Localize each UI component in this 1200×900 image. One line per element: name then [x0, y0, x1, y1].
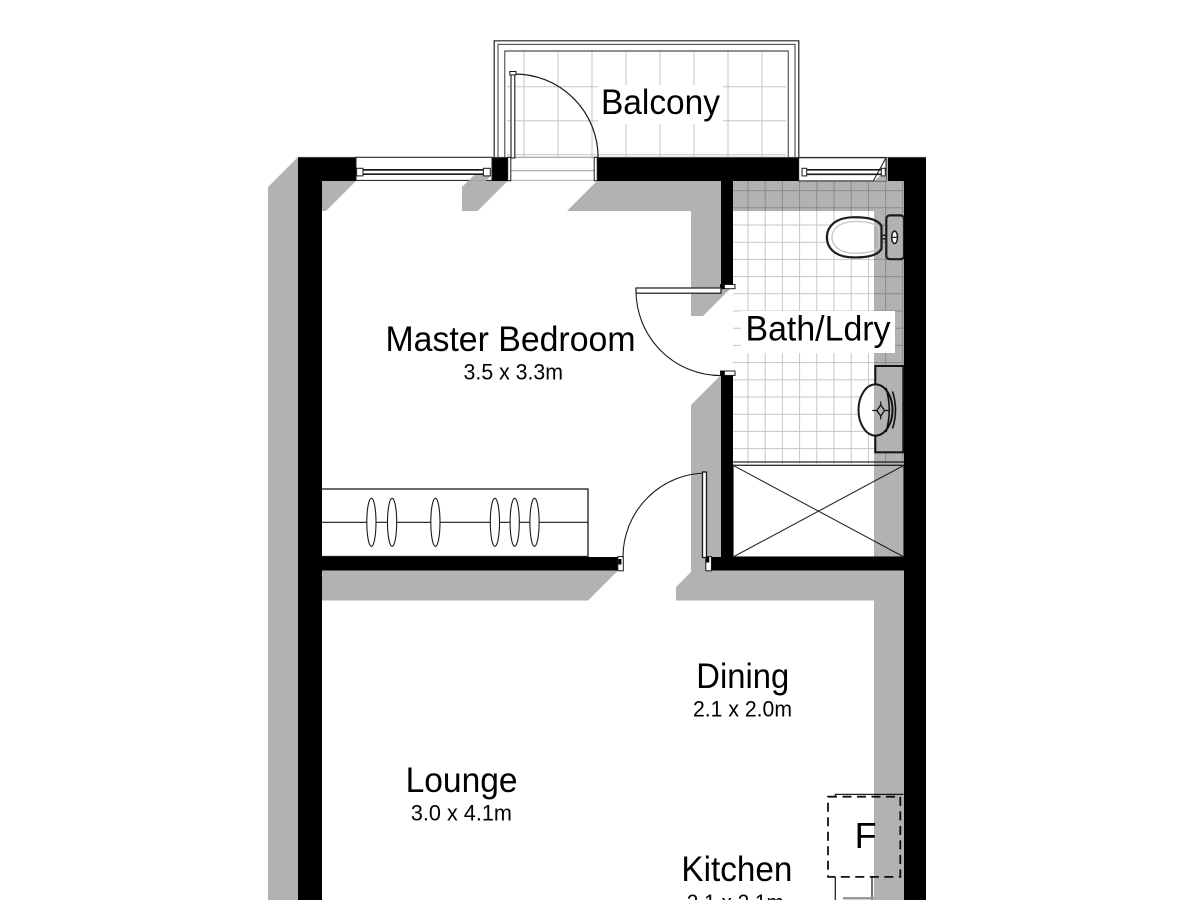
svg-text:Lounge: Lounge: [406, 761, 518, 800]
svg-text:Kitchen: Kitchen: [681, 850, 792, 889]
svg-text:3.5 x 3.3m: 3.5 x 3.3m: [464, 360, 564, 385]
svg-text:2.1 x 2.0m: 2.1 x 2.0m: [693, 697, 792, 722]
svg-text:Balcony: Balcony: [601, 83, 720, 122]
svg-text:Dining: Dining: [696, 657, 789, 696]
svg-text:Bath/Ldry: Bath/Ldry: [746, 310, 891, 349]
svg-text:Master Bedroom: Master Bedroom: [386, 320, 636, 359]
svg-text:2.1 x 2.1m: 2.1 x 2.1m: [687, 890, 784, 900]
svg-text:F: F: [855, 815, 877, 856]
svg-text:3.0 x 4.1m: 3.0 x 4.1m: [411, 801, 512, 826]
